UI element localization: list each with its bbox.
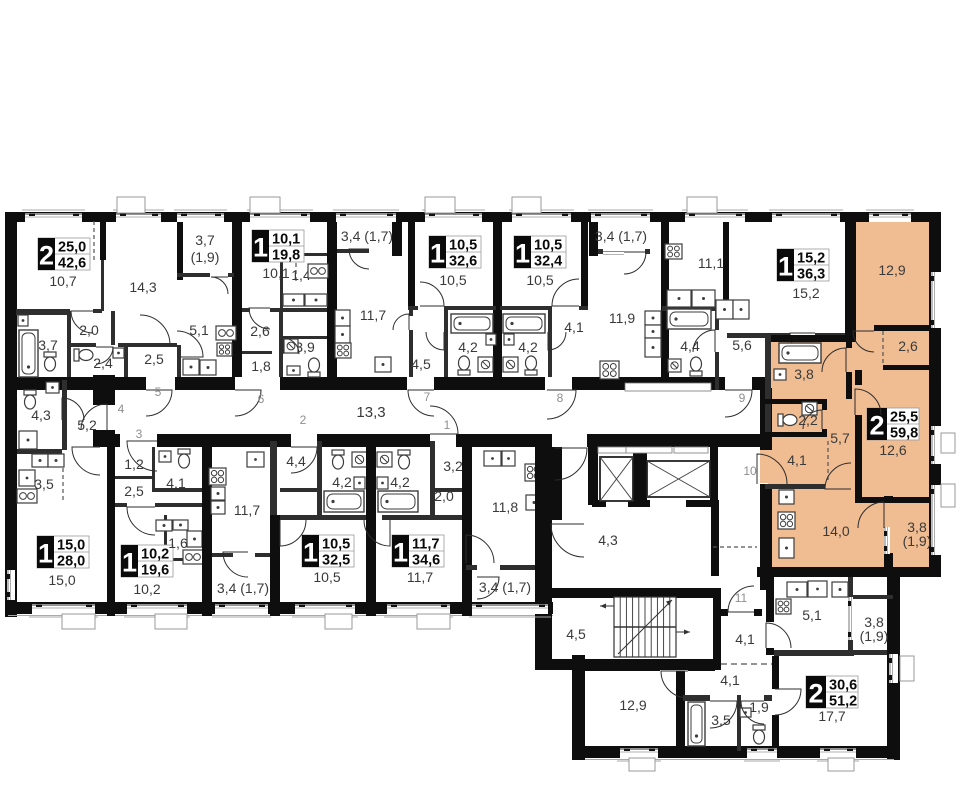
svg-text:4: 4	[118, 402, 125, 416]
svg-text:11,9: 11,9	[609, 310, 635, 326]
svg-text:19,6: 19,6	[141, 563, 169, 579]
svg-text:1: 1	[393, 538, 408, 568]
svg-text:4,3: 4,3	[598, 532, 618, 548]
svg-text:4,1: 4,1	[720, 672, 740, 688]
svg-text:15,0: 15,0	[57, 538, 85, 554]
svg-text:3,4 (1,7): 3,4 (1,7)	[217, 580, 269, 596]
svg-text:4,1: 4,1	[735, 631, 755, 647]
svg-text:10,1: 10,1	[272, 232, 300, 248]
svg-text:59,8: 59,8	[890, 426, 918, 442]
svg-text:17,7: 17,7	[818, 708, 845, 724]
svg-text:11,7: 11,7	[407, 569, 433, 585]
svg-text:11,8: 11,8	[492, 499, 518, 515]
svg-text:11,7: 11,7	[360, 307, 386, 323]
svg-text:10,2: 10,2	[141, 547, 169, 563]
svg-text:4,2: 4,2	[518, 339, 538, 355]
svg-text:4,2: 4,2	[458, 339, 478, 355]
svg-text:2,5: 2,5	[124, 483, 144, 499]
svg-text:3,4 (1,7): 3,4 (1,7)	[479, 579, 531, 595]
svg-text:6: 6	[258, 392, 265, 406]
svg-text:4,1: 4,1	[564, 319, 584, 335]
svg-text:25,5: 25,5	[890, 410, 918, 426]
svg-text:1: 1	[303, 538, 318, 568]
svg-text:4,5: 4,5	[411, 356, 431, 372]
svg-text:1: 1	[444, 418, 451, 432]
svg-text:(1,9): (1,9)	[903, 533, 932, 549]
svg-text:4,3: 4,3	[31, 407, 51, 423]
svg-text:5: 5	[155, 385, 162, 399]
svg-text:5,7: 5,7	[830, 430, 850, 446]
svg-text:25,0: 25,0	[58, 240, 86, 256]
svg-text:1: 1	[253, 233, 268, 263]
svg-text:13,3: 13,3	[356, 404, 385, 421]
svg-text:2: 2	[39, 241, 54, 271]
svg-text:15,2: 15,2	[797, 251, 825, 267]
svg-text:10,5: 10,5	[526, 272, 553, 288]
svg-text:2: 2	[300, 413, 307, 427]
svg-text:5,6: 5,6	[732, 337, 752, 353]
svg-text:42,6: 42,6	[58, 256, 86, 272]
svg-text:14,0: 14,0	[822, 523, 849, 539]
svg-text:12,9: 12,9	[619, 697, 646, 713]
svg-text:10,1: 10,1	[262, 265, 289, 281]
svg-text:3: 3	[136, 427, 143, 441]
svg-text:32,6: 32,6	[449, 254, 477, 270]
svg-text:4,1: 4,1	[166, 475, 186, 491]
svg-text:10,5: 10,5	[313, 569, 340, 585]
svg-text:1,2: 1,2	[124, 456, 144, 472]
svg-text:4,2: 4,2	[390, 474, 410, 490]
svg-text:19,8: 19,8	[272, 248, 300, 264]
svg-text:15,0: 15,0	[48, 572, 75, 588]
svg-text:11,1: 11,1	[698, 255, 724, 271]
svg-text:1: 1	[122, 548, 137, 578]
svg-text:32,4: 32,4	[534, 254, 562, 270]
svg-text:4,5: 4,5	[566, 626, 586, 642]
svg-text:2,6: 2,6	[250, 323, 270, 339]
svg-text:9: 9	[739, 391, 746, 405]
svg-text:3,4 (1,7): 3,4 (1,7)	[595, 228, 647, 244]
svg-text:3,4 (1,7): 3,4 (1,7)	[341, 228, 393, 244]
svg-text:4,4: 4,4	[680, 338, 700, 354]
svg-text:10,5: 10,5	[534, 238, 562, 254]
svg-text:1: 1	[515, 239, 530, 269]
svg-text:10,5: 10,5	[449, 238, 477, 254]
svg-text:12,9: 12,9	[878, 262, 905, 278]
svg-text:11,7: 11,7	[234, 502, 260, 518]
svg-text:10: 10	[743, 464, 757, 478]
svg-text:12,6: 12,6	[879, 442, 906, 458]
svg-text:2,0: 2,0	[434, 488, 454, 504]
svg-text:1,6: 1,6	[168, 535, 188, 551]
svg-text:32,5: 32,5	[322, 553, 350, 569]
svg-text:10,7: 10,7	[49, 273, 76, 289]
svg-text:5,1: 5,1	[802, 607, 822, 623]
svg-text:14,3: 14,3	[129, 279, 156, 295]
svg-text:34,6: 34,6	[412, 553, 440, 569]
svg-text:1: 1	[38, 539, 53, 569]
svg-text:7: 7	[424, 390, 431, 404]
svg-text:10,2: 10,2	[133, 581, 160, 597]
svg-text:5,2: 5,2	[77, 417, 97, 433]
svg-text:1: 1	[430, 239, 445, 269]
svg-text:2: 2	[808, 679, 823, 709]
svg-text:(1,9): (1,9)	[191, 249, 220, 265]
svg-text:3,7: 3,7	[38, 337, 58, 353]
svg-text:4,1: 4,1	[787, 452, 807, 468]
svg-text:3,2: 3,2	[443, 458, 463, 474]
svg-text:3,7: 3,7	[195, 232, 215, 248]
svg-text:10,5: 10,5	[439, 272, 466, 288]
svg-text:1,8: 1,8	[251, 358, 271, 374]
svg-text:(1,9): (1,9)	[860, 628, 889, 644]
svg-text:36,3: 36,3	[797, 267, 825, 283]
svg-text:3,8: 3,8	[794, 366, 814, 382]
svg-text:2,5: 2,5	[144, 351, 164, 367]
svg-text:2: 2	[869, 411, 884, 441]
svg-text:28,0: 28,0	[57, 554, 85, 570]
svg-text:10,5: 10,5	[322, 537, 350, 553]
svg-text:8: 8	[557, 391, 564, 405]
svg-text:4,4: 4,4	[286, 453, 306, 469]
svg-text:4,2: 4,2	[332, 474, 352, 490]
svg-text:2,6: 2,6	[898, 338, 918, 354]
svg-text:30,6: 30,6	[829, 678, 857, 694]
svg-text:15,2: 15,2	[792, 285, 819, 301]
svg-text:11,7: 11,7	[412, 537, 439, 553]
svg-text:1: 1	[778, 252, 793, 282]
